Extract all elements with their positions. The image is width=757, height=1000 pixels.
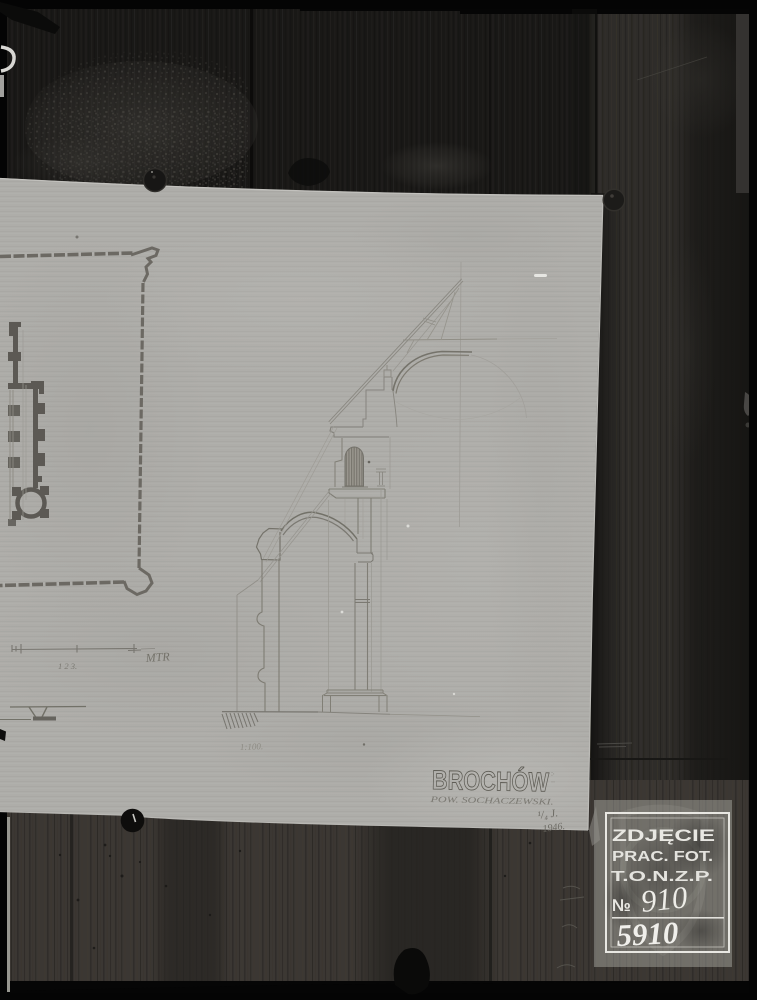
svg-text:№: № <box>612 896 631 915</box>
svg-text:ZDJĘCIE: ZDJĘCIE <box>612 826 715 845</box>
svg-text:··: ·· <box>551 779 555 785</box>
svg-text:1:100.: 1:100. <box>240 741 264 752</box>
svg-text:BROCHÓW: BROCHÓW <box>432 764 550 797</box>
svg-text:PRAC. FOT.: PRAC. FOT. <box>612 848 713 865</box>
svg-text::·: :· <box>551 771 555 777</box>
svg-text:MTR: MTR <box>144 649 171 665</box>
svg-text:910: 910 <box>639 879 689 919</box>
svg-text:5910: 5910 <box>616 915 680 953</box>
svg-text:1 2 3.: 1 2 3. <box>58 661 77 671</box>
